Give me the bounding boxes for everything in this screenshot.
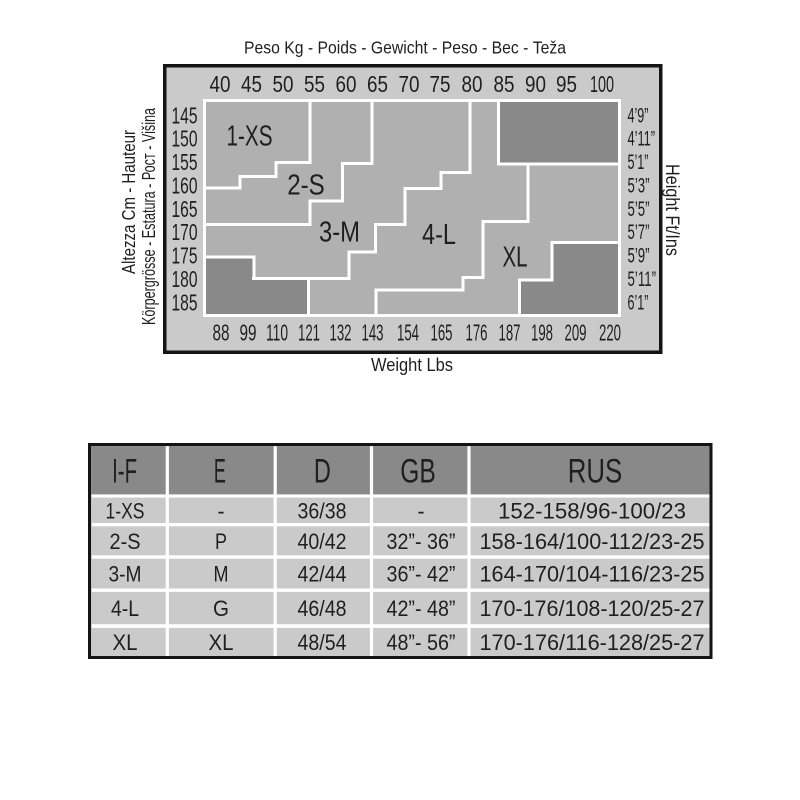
svg-text:132: 132	[330, 320, 352, 346]
svg-text:75: 75	[430, 71, 451, 97]
svg-text:Körpergrösse - Estatura - Рост: Körpergrösse - Estatura - Рост - Višina	[138, 108, 159, 325]
svg-text:3-M: 3-M	[109, 562, 142, 587]
svg-text:100: 100	[590, 71, 614, 97]
svg-text:155: 155	[172, 149, 198, 175]
svg-text:-: -	[418, 498, 425, 523]
svg-text:95: 95	[556, 71, 577, 97]
svg-text:88: 88	[213, 320, 230, 346]
svg-text:Altezza Cm - Hauteur: Altezza Cm - Hauteur	[118, 130, 139, 274]
svg-text:70: 70	[399, 71, 420, 97]
svg-text:G: G	[213, 596, 229, 621]
svg-text:180: 180	[172, 266, 198, 292]
svg-text:170-176/116-128/25-27: 170-176/116-128/25-27	[480, 630, 705, 655]
svg-text:Peso Kg - Poids - Gewicht - Pe: Peso Kg - Poids - Gewicht - Peso - Вес -…	[244, 38, 566, 58]
svg-text:121: 121	[298, 320, 320, 346]
svg-text:150: 150	[172, 126, 198, 152]
svg-text:60: 60	[336, 71, 357, 97]
svg-text:209: 209	[565, 320, 587, 346]
svg-text:220: 220	[599, 320, 621, 346]
svg-text:P: P	[215, 529, 227, 554]
svg-text:110: 110	[266, 320, 288, 346]
svg-text:143: 143	[362, 320, 384, 346]
svg-text:154: 154	[397, 320, 419, 346]
svg-text:90: 90	[525, 71, 546, 97]
svg-text:1-XS: 1-XS	[227, 120, 273, 152]
svg-text:XL: XL	[209, 630, 234, 655]
svg-text:80: 80	[462, 71, 483, 97]
svg-text:164-170/104-116/23-25: 164-170/104-116/23-25	[480, 562, 705, 587]
svg-text:99: 99	[240, 320, 257, 346]
svg-text:Height Ft/Ins: Height Ft/Ins	[661, 164, 682, 256]
svg-text:185: 185	[172, 289, 198, 315]
svg-text:I-F: I-F	[112, 452, 137, 490]
svg-text:1-XS: 1-XS	[106, 498, 145, 523]
svg-text:165: 165	[431, 320, 453, 346]
svg-text:48”- 56”: 48”- 56”	[387, 630, 456, 655]
svg-text:42”- 48”: 42”- 48”	[387, 596, 456, 621]
svg-text:-: -	[218, 498, 225, 523]
svg-text:4-L: 4-L	[422, 219, 456, 251]
svg-text:42/44: 42/44	[298, 562, 347, 587]
svg-text:4’11”: 4’11”	[628, 128, 656, 151]
svg-text:5’1”: 5’1”	[628, 151, 649, 174]
svg-text:175: 175	[172, 243, 198, 269]
svg-text:158-164/100-112/23-25: 158-164/100-112/23-25	[480, 529, 705, 554]
svg-text:5’9”: 5’9”	[628, 245, 650, 268]
svg-text:4’9”: 4’9”	[628, 104, 649, 127]
svg-text:36/38: 36/38	[298, 498, 347, 523]
svg-text:50: 50	[273, 71, 294, 97]
svg-text:198: 198	[531, 320, 553, 346]
svg-text:5’11”: 5’11”	[628, 268, 657, 291]
svg-text:GB: GB	[400, 452, 436, 490]
svg-text:XL: XL	[113, 630, 138, 655]
svg-text:M: M	[214, 562, 229, 587]
svg-text:170: 170	[172, 219, 198, 245]
svg-text:2-S: 2-S	[110, 529, 141, 554]
svg-text:5’3”: 5’3”	[628, 174, 650, 197]
svg-text:65: 65	[367, 71, 388, 97]
svg-text:187: 187	[499, 320, 521, 346]
svg-text:45: 45	[241, 71, 262, 97]
svg-text:85: 85	[494, 71, 515, 97]
svg-text:5’5”: 5’5”	[628, 198, 650, 221]
svg-text:5’7”: 5’7”	[628, 221, 650, 244]
svg-text:D: D	[314, 452, 331, 490]
svg-text:6’1”: 6’1”	[628, 291, 649, 314]
svg-text:3-M: 3-M	[319, 216, 360, 248]
svg-text:Weight Lbs: Weight Lbs	[371, 355, 453, 375]
svg-text:165: 165	[172, 196, 198, 222]
svg-text:176: 176	[466, 320, 488, 346]
svg-text:170-176/108-120/25-27: 170-176/108-120/25-27	[480, 596, 705, 621]
svg-text:36”- 42”: 36”- 42”	[387, 562, 456, 587]
svg-text:152-158/96-100/23: 152-158/96-100/23	[498, 498, 686, 523]
svg-text:48/54: 48/54	[298, 630, 347, 655]
svg-text:XL: XL	[503, 241, 528, 273]
svg-text:40/42: 40/42	[298, 529, 347, 554]
svg-text:E: E	[214, 452, 226, 490]
svg-text:4-L: 4-L	[111, 596, 139, 621]
svg-text:2-S: 2-S	[287, 169, 325, 201]
svg-text:160: 160	[172, 172, 198, 198]
svg-text:40: 40	[210, 71, 231, 97]
svg-text:32”- 36”: 32”- 36”	[387, 529, 456, 554]
svg-text:RUS: RUS	[568, 452, 623, 490]
svg-text:145: 145	[172, 102, 198, 128]
svg-text:46/48: 46/48	[298, 596, 347, 621]
svg-text:55: 55	[304, 71, 325, 97]
